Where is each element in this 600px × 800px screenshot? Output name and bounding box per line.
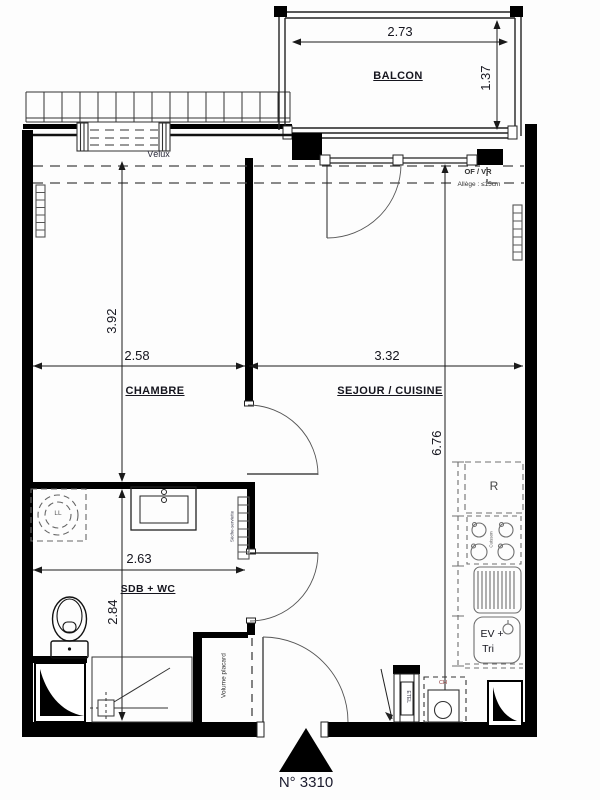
dim-bathroom-width: 2.63 — [109, 552, 169, 566]
living-label: SEJOUR / CUISINE — [310, 385, 470, 397]
washbasin — [131, 487, 196, 530]
fridge-label: R — [480, 480, 508, 493]
bedroom-label: CHAMBRE — [95, 385, 215, 397]
electrical-panel — [381, 665, 420, 722]
radiator-living — [513, 205, 522, 260]
sink-label-1: EV + — [474, 629, 510, 641]
closet-label: Volume placard — [220, 631, 227, 721]
dim-bedroom-length: 3.92 — [105, 301, 119, 341]
window-type-label: OF / VR — [452, 168, 504, 176]
washing-machine-label: LL — [46, 510, 70, 517]
dim-living-width: 3.32 — [357, 349, 417, 363]
electrical-panel-label: ETEL — [404, 682, 410, 712]
balcony-label: BALCON — [348, 70, 448, 82]
velux-skylight — [77, 123, 170, 151]
velux-label: Vélux — [136, 150, 181, 160]
radiator-bedroom — [36, 185, 45, 237]
water-heater-label: CH — [433, 680, 453, 686]
walls — [22, 124, 537, 737]
sink-label-2: Tri — [470, 644, 506, 656]
dim-balcony-width: 2.73 — [370, 25, 430, 39]
duct-bottom-right — [488, 681, 522, 726]
dim-bathroom-depth: 2.84 — [106, 592, 120, 632]
hob-label: Cuisson — [490, 519, 495, 559]
floor-plan-linework — [0, 0, 600, 800]
toilet — [51, 597, 88, 658]
bathroom-door — [250, 553, 318, 621]
dim-bedroom-width: 2.58 — [107, 349, 167, 363]
plan-number: N° 3310 — [256, 775, 356, 792]
drainboard — [474, 567, 521, 613]
duct-bottom-left — [35, 663, 85, 722]
shower — [90, 657, 192, 722]
entrance-door — [263, 637, 348, 722]
towel-dryer-label: Sèche-serviette — [231, 494, 236, 558]
floor-plan: 2.73 BALCON 1.37 Vélux OF / VR Allège : … — [0, 0, 600, 800]
dim-balcony-depth: 1.37 — [479, 58, 493, 98]
dim-living-length: 6.76 — [430, 423, 444, 463]
bedroom-door — [247, 405, 318, 475]
sill-label: Allège : ≤15cm — [450, 181, 508, 188]
